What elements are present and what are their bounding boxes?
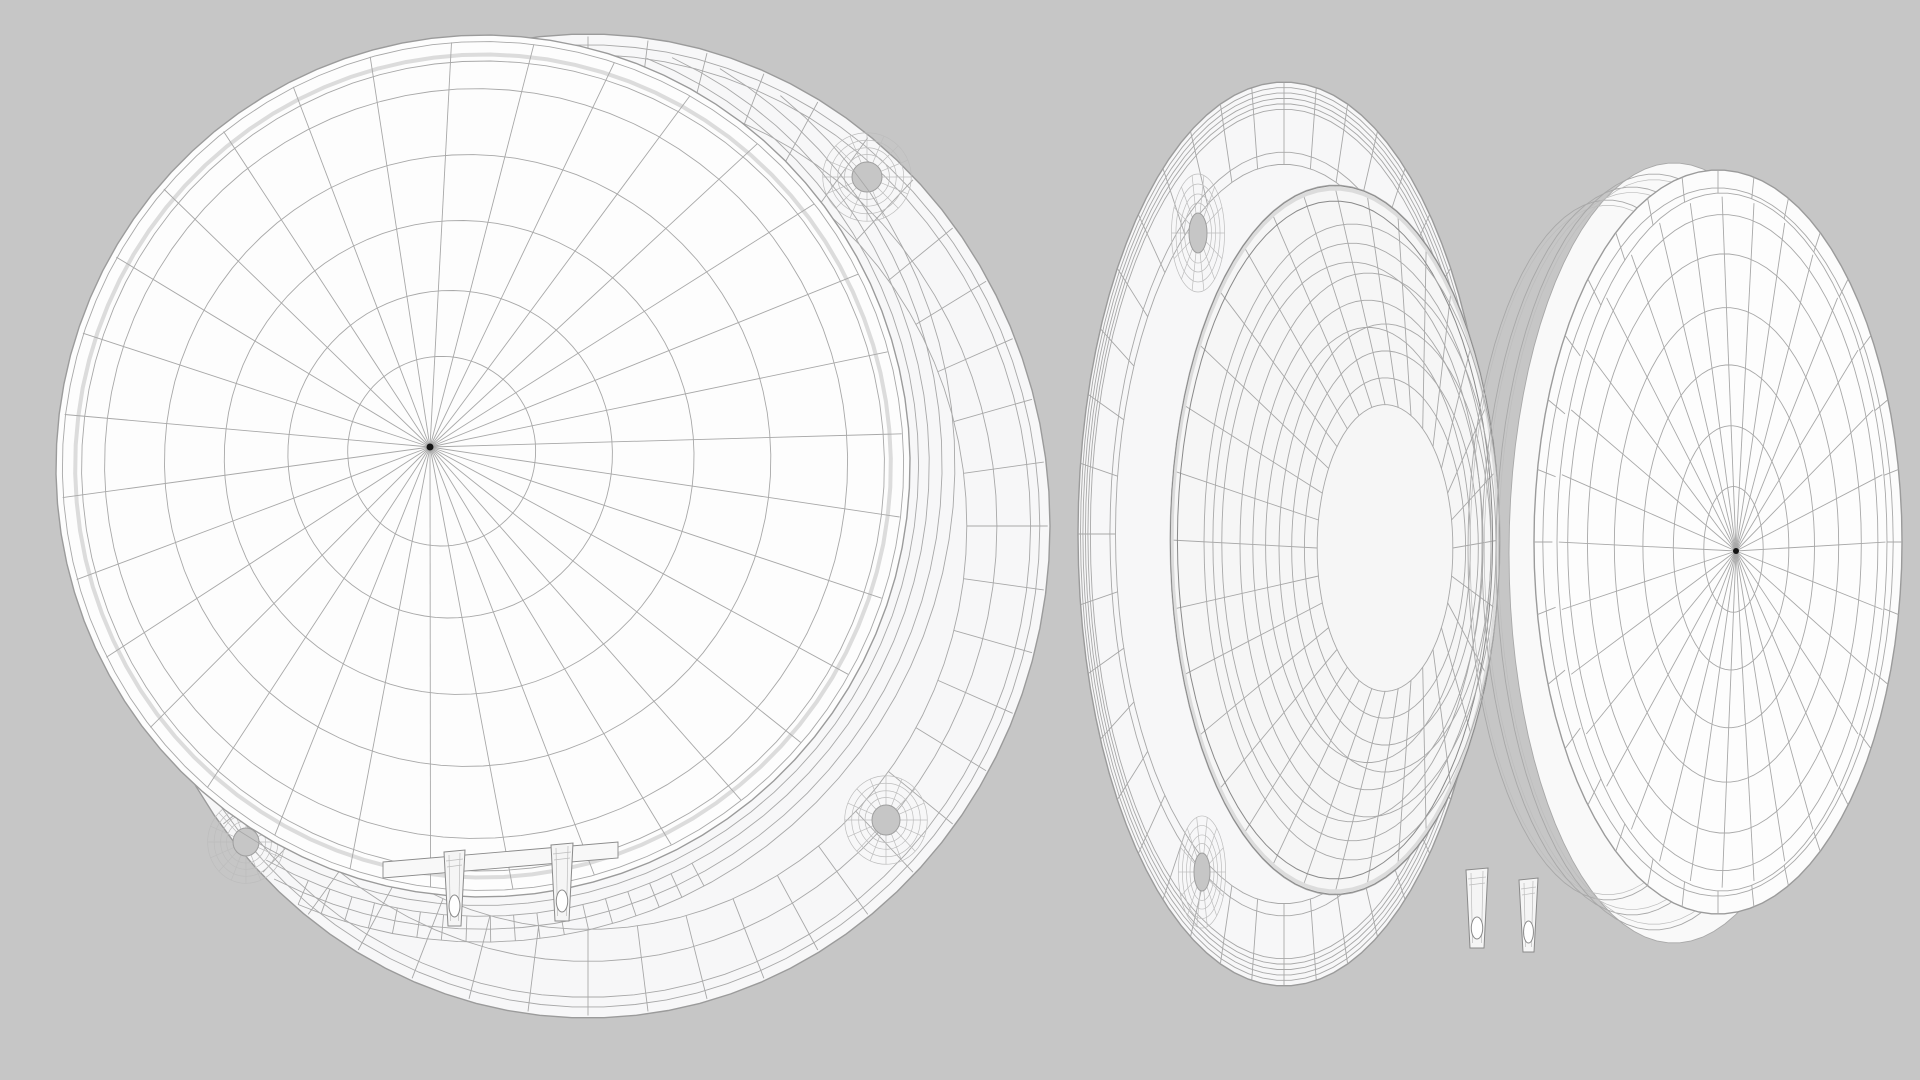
terminal-hole <box>1471 917 1482 939</box>
render-viewport <box>0 0 1920 1080</box>
terminal-hole <box>1524 921 1534 943</box>
screw-hole <box>872 805 900 835</box>
screw-hole <box>1189 213 1207 253</box>
terminal-hole <box>556 890 567 912</box>
screw-hole <box>233 828 259 856</box>
wireframe-scene <box>0 0 1920 1080</box>
screw-hole <box>852 162 882 192</box>
cone-apex-dot <box>427 444 434 451</box>
cone-disc <box>56 35 910 897</box>
cone-ray <box>430 447 431 887</box>
dome-apex-dot <box>1733 548 1739 554</box>
screw-hole <box>1194 853 1210 891</box>
terminal-hole <box>449 895 460 917</box>
